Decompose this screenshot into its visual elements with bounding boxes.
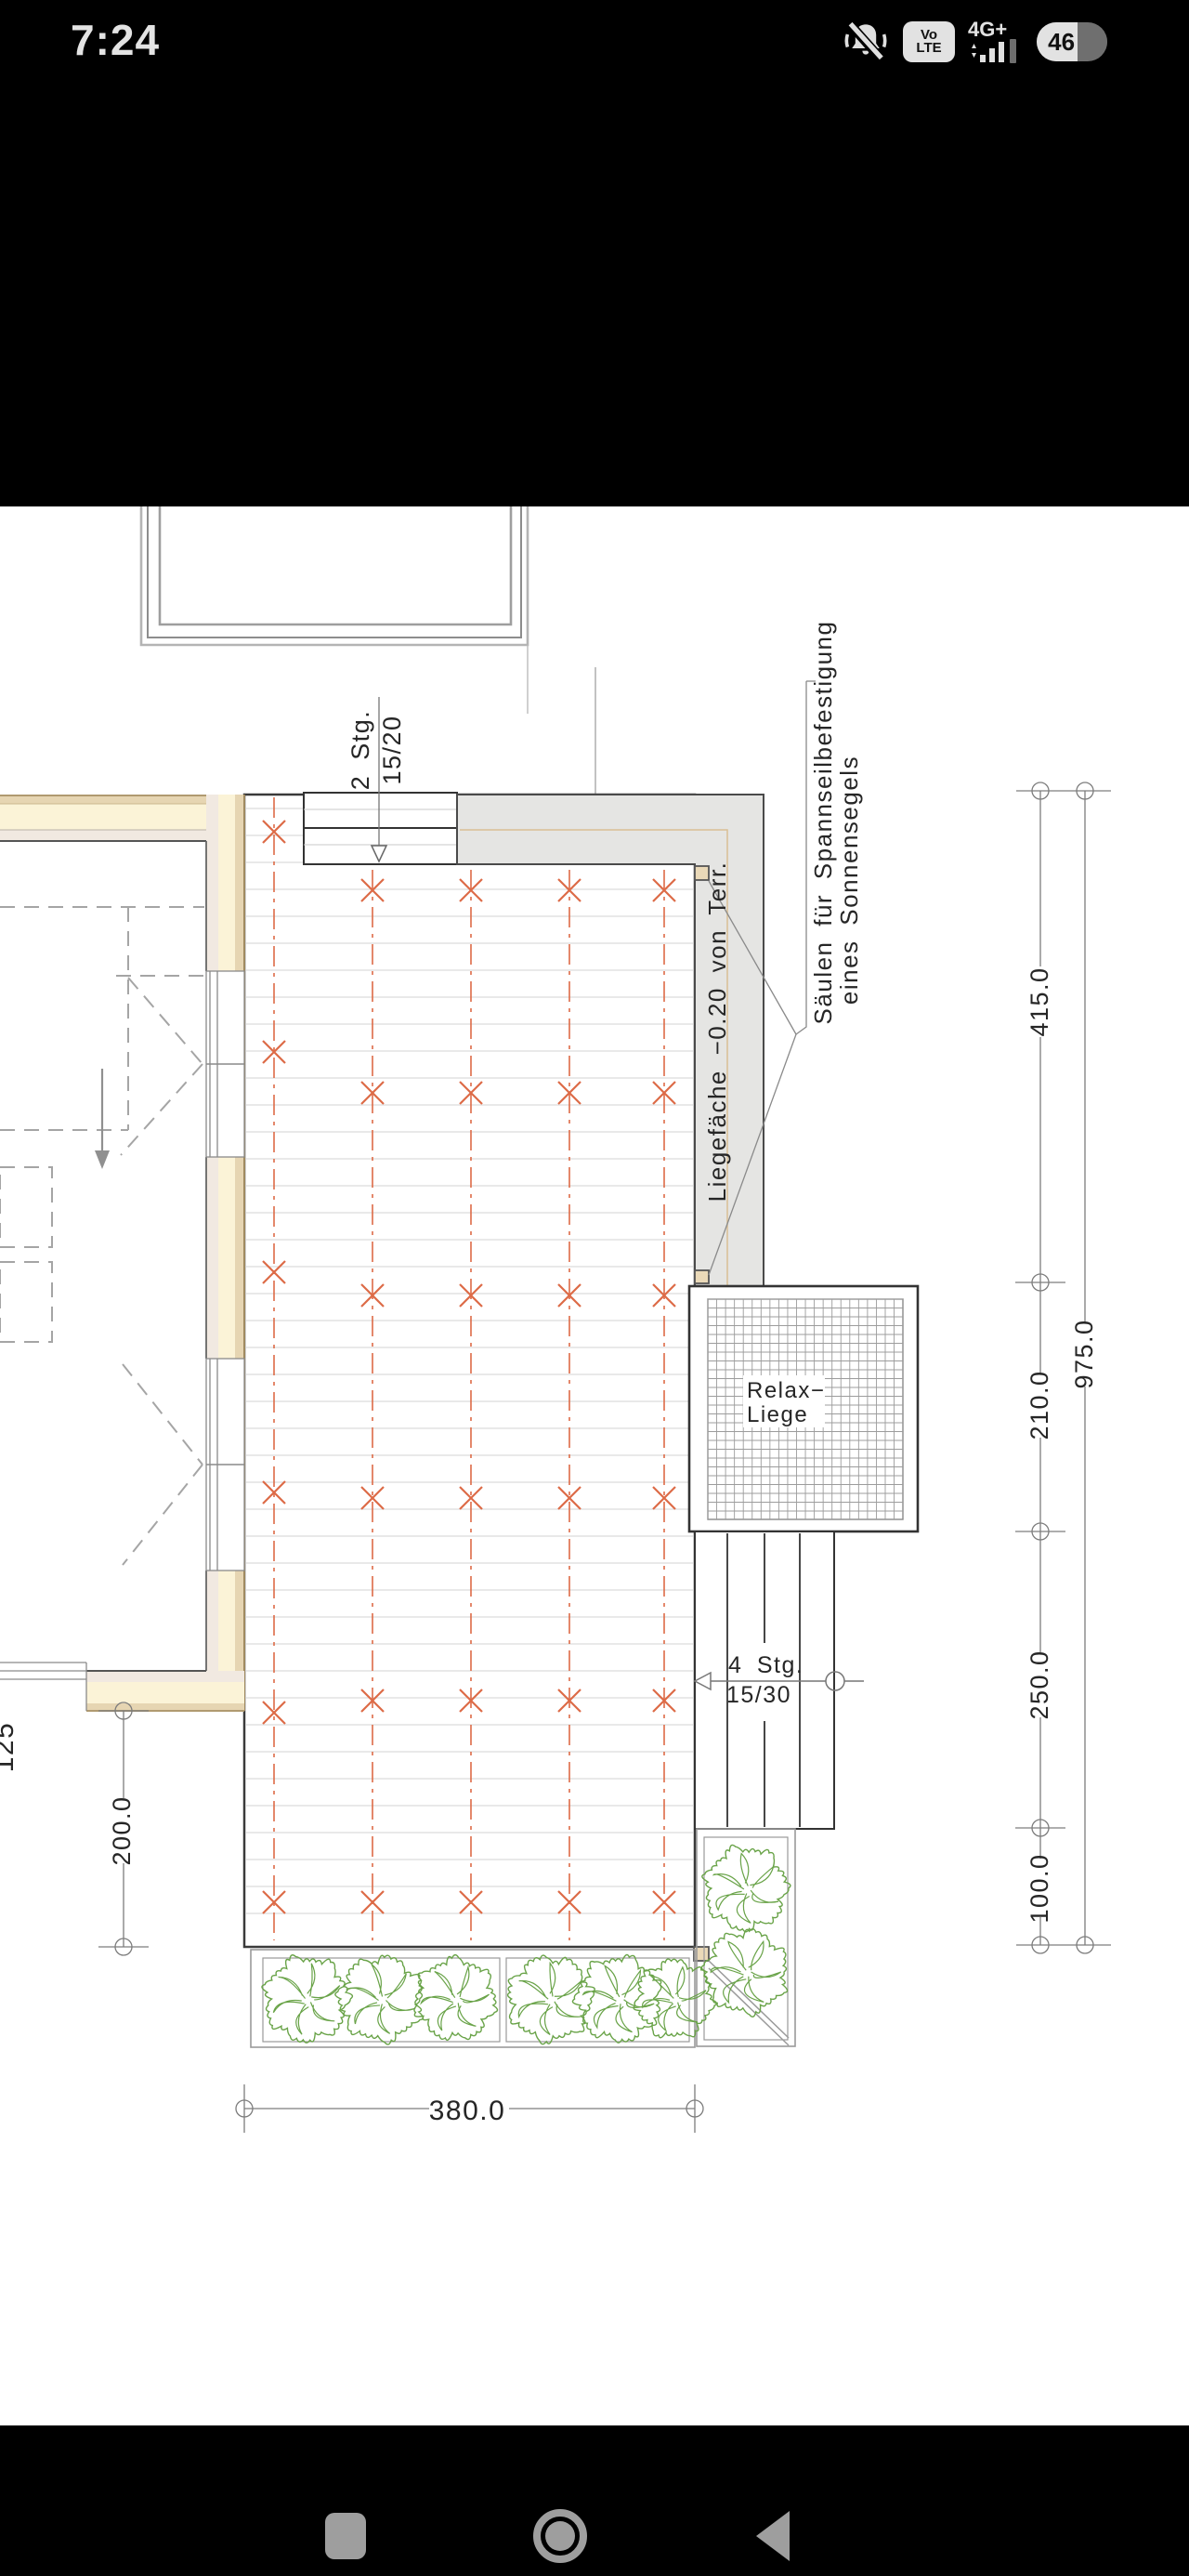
dim-210: 210.0 <box>1026 1370 1053 1439</box>
status-bar: 7:24 VoLTE 4G+ 46 <box>0 0 1189 506</box>
battery-indicator: 46 <box>1037 22 1107 61</box>
phone-screen: { "status_bar": { "time": "7:24", "volte… <box>0 0 1189 2576</box>
label-saeulen-1: Säulen für Spannseilbefestigung <box>809 621 837 1025</box>
label-liegeflaeche: Liegefäche −0.20 von Terr. <box>703 861 731 1203</box>
dim-380: 380.0 <box>429 2096 506 2126</box>
recents-button[interactable] <box>319 2509 372 2563</box>
hidden-lines <box>0 907 204 1565</box>
lower-stairs <box>695 1531 864 1829</box>
dim-100: 100.0 <box>1026 1853 1053 1923</box>
dim-415: 415.0 <box>1026 966 1053 1036</box>
label-relax-1: Relax− <box>747 1378 825 1403</box>
label-saeulen-2: eines Sonnensegels <box>835 756 863 1005</box>
label-stairs-top-2: 15/20 <box>378 715 406 784</box>
label-relax-2: Liege <box>747 1402 808 1427</box>
home-button[interactable] <box>533 2509 587 2563</box>
dim-250: 250.0 <box>1026 1649 1053 1719</box>
notifications-muted-icon <box>842 19 890 65</box>
wall-segment <box>86 1671 244 1711</box>
terrace-floor-plan[interactable]: 2 Stg. 15/20 Säulen für Spannseilbefesti… <box>0 506 1189 2425</box>
house-walls <box>0 795 244 1711</box>
label-stairs-top-1: 2 Stg. <box>346 710 374 791</box>
dim-200: 200.0 <box>108 1795 136 1865</box>
volte-badge: VoLTE <box>903 21 955 62</box>
android-nav-bar <box>0 2425 1189 2576</box>
dim-975: 975.0 <box>1070 1319 1098 1388</box>
entrance-arrow <box>95 1069 110 1169</box>
wood-deck <box>244 795 695 1947</box>
wall-segment <box>206 795 244 1711</box>
label-stairs-right-2: 15/30 <box>726 1682 791 1708</box>
network-type: 4G+ <box>968 20 1024 63</box>
dim-125-partial: 125 <box>0 1722 20 1773</box>
signal-bars-icon <box>968 39 1024 63</box>
battery-percent: 46 <box>1037 22 1086 61</box>
clock: 7:24 <box>71 15 160 65</box>
label-stairs-right-1: 4 Stg. <box>728 1652 804 1678</box>
back-button[interactable] <box>747 2509 801 2563</box>
